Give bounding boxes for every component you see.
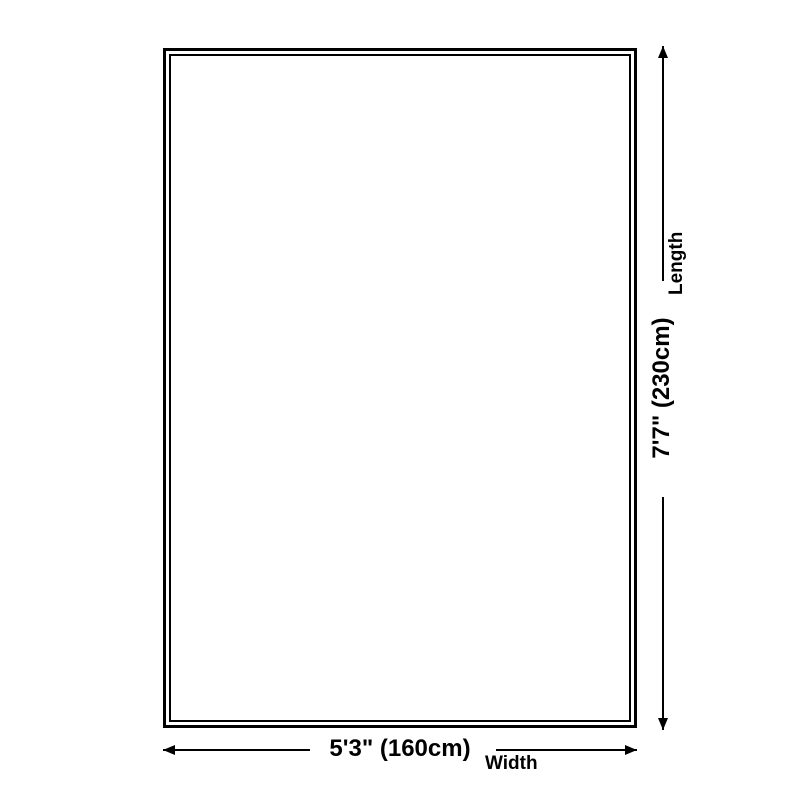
arrow-up-icon (662, 46, 664, 281)
rug-inner-border (169, 54, 631, 722)
arrow-right-icon (496, 749, 637, 751)
arrow-down-icon (662, 497, 664, 730)
width-label: Width (485, 754, 538, 773)
width-value: 5'3" (160cm) (329, 737, 470, 761)
rug-outline (163, 48, 637, 728)
width-dimension: 5'3" (160cm) Width (163, 730, 637, 780)
arrow-left-icon (163, 749, 310, 751)
length-label: Length (667, 232, 686, 295)
length-value: 7'7" (230cm) (650, 317, 674, 458)
length-dimension: 7'7" (230cm) Length (643, 46, 693, 730)
rug-size-diagram: 5'3" (160cm) Width 7'7" (230cm) Length (0, 0, 800, 800)
